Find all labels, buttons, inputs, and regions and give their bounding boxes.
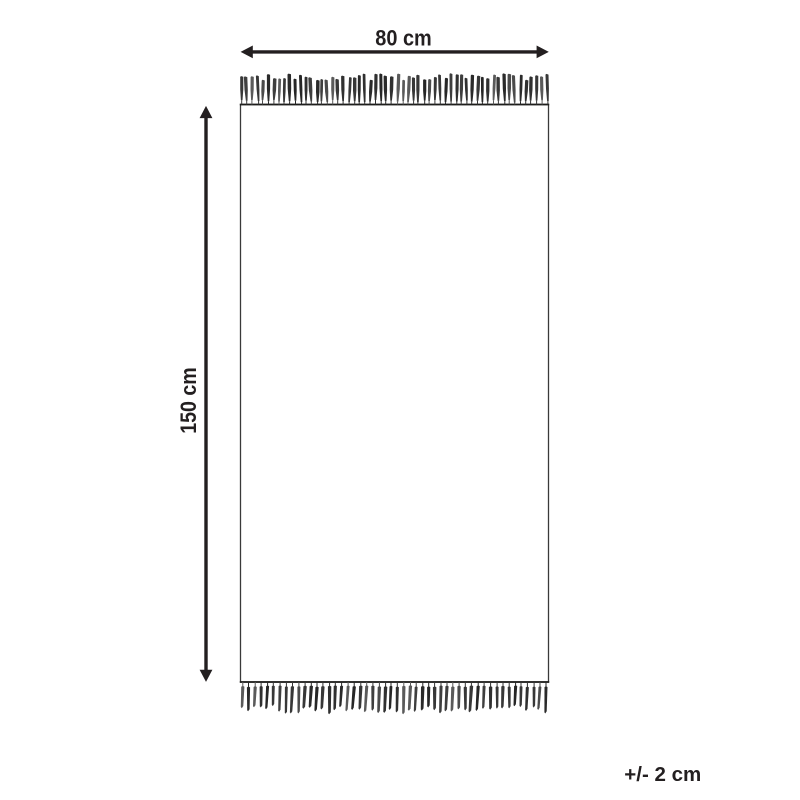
svg-text:150 cm: 150 cm [176, 367, 201, 434]
svg-text:80 cm: 80 cm [375, 26, 432, 51]
svg-text:+/- 2 cm: +/- 2 cm [624, 763, 701, 786]
